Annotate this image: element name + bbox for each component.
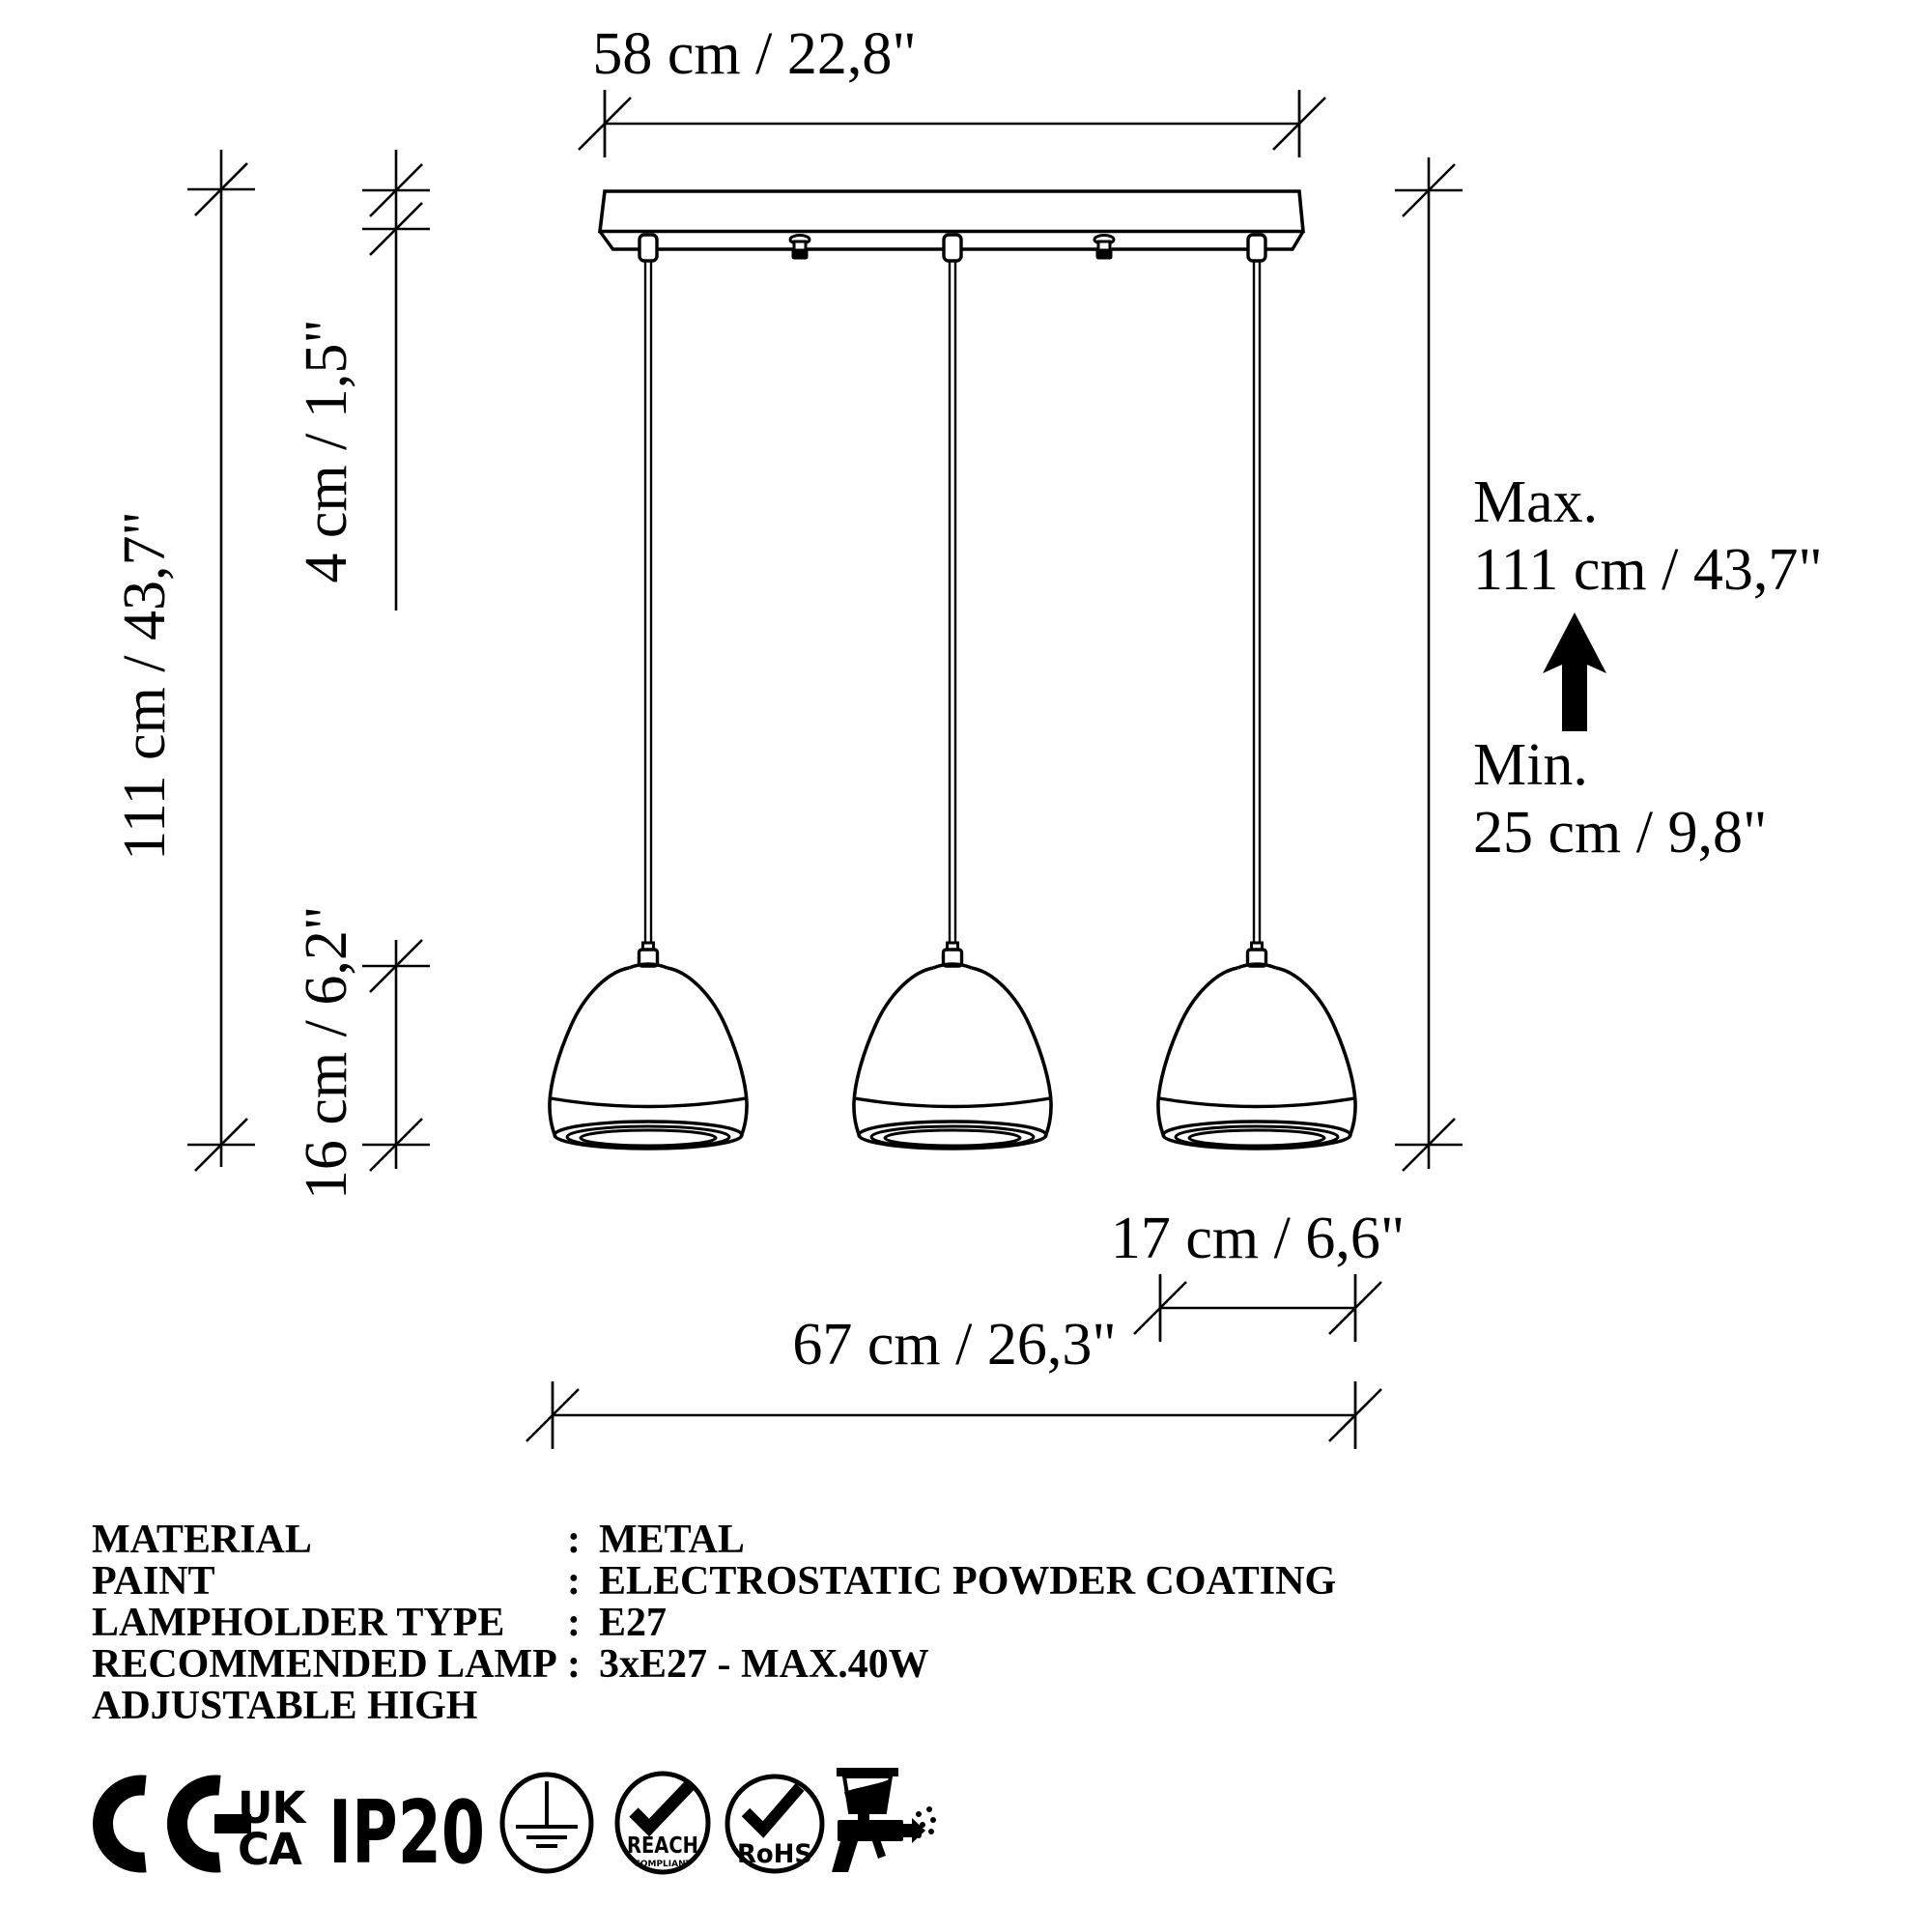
spec-table: MATERIAL : METAL PAINT : ELECTROSTATIC P… [92,1518,1336,1728]
spec-row-material: MATERIAL : METAL [92,1518,745,1562]
dim-canopy-height-label: 4 cm / 1,5" [294,319,359,582]
spec-row-lampholder: LAMPHOLDER TYPE : E27 [92,1601,667,1645]
ip20-rating-label: IP20 [328,1782,485,1884]
svg-text:CA: CA [238,1824,302,1875]
spec-row-recommended-lamp: RECOMMENDED LAMP : 3xE27 - MAX.40W [92,1642,929,1687]
svg-text:MATERIAL: MATERIAL [92,1518,312,1562]
protective-earth-icon [502,1775,591,1871]
dim-adjustable-height-line [1395,157,1463,1171]
spec-row-paint: PAINT : ELECTROSTATIC POWDER COATING [92,1559,1336,1604]
spray-gun-icon [832,1768,936,1872]
rohs-badge-icon: RoHS [727,1776,822,1871]
svg-text:REACH: REACH [627,1833,698,1859]
svg-text:LAMPHOLDER TYPE: LAMPHOLDER TYPE [92,1601,504,1645]
canopy-screw-right [1094,236,1114,260]
dim-canopy-width-label: 58 cm / 22,8" [592,21,916,87]
max-value: 111 cm / 43,7" [1473,537,1823,603]
spec-row-adjustable: ADJUSTABLE HIGH [92,1684,477,1728]
dim-canopy-width: 58 cm / 22,8" [579,21,1325,157]
svg-text::: : [567,1559,581,1604]
pendant-shade-left [550,235,747,1149]
ce-mark-icon [103,1785,251,1862]
svg-text:COMPLIANT: COMPLIANT [634,1860,692,1869]
dim-overall-height-label: 111 cm / 43,7" [112,511,178,861]
dim-overall-height: 111 cm / 43,7" [112,150,255,1171]
up-arrow-icon [1543,612,1606,731]
dim-canopy-height: 4 cm / 1,5" [294,150,430,611]
canopy-screw-left [790,236,810,260]
svg-text:METAL: METAL [599,1518,745,1562]
dim-shade-width: 17 cm / 6,6" [1111,1206,1405,1342]
pendant-lamp-drawing [550,191,1355,1149]
svg-text:ELECTROSTATIC POWDER COATING: ELECTROSTATIC POWDER COATING [599,1559,1336,1604]
min-label: Min. [1473,732,1588,798]
svg-text:RoHS: RoHS [737,1839,812,1869]
certification-row: UK CA IP20 REACH COMPLIANT RoHS [103,1768,936,1884]
ukca-mark-icon: UK CA [238,1782,308,1875]
reach-badge-icon: REACH COMPLIANT [617,1774,708,1872]
svg-text:PAINT: PAINT [92,1559,215,1604]
dim-shade-height-label: 16 cm / 6,2" [294,906,359,1200]
max-label: Max. [1473,469,1598,535]
svg-text::: : [567,1642,581,1687]
product-dimension-sheet: 58 cm / 22,8" 4 cm / 1,5" 111 cm / 43,7"… [0,0,1932,1932]
adjustable-height-annotation: Max. 111 cm / 43,7" Min. 25 cm / 9,8" [1473,469,1823,866]
svg-text:RECOMMENDED LAMP: RECOMMENDED LAMP [92,1642,557,1687]
svg-text:ADJUSTABLE HIGH: ADJUSTABLE HIGH [92,1684,477,1728]
svg-text::: : [567,1601,581,1645]
dim-shade-height: 16 cm / 6,2" [294,906,430,1200]
spray-dots [916,1806,936,1838]
dim-total-width: 67 cm / 26,3" [526,1312,1381,1449]
pendant-shade-middle [854,235,1051,1149]
pendant-shade-right [1158,235,1355,1149]
min-value: 25 cm / 9,8" [1473,800,1767,866]
svg-text::: : [567,1518,581,1562]
svg-text:E27: E27 [599,1601,667,1645]
svg-text:3xE27 - MAX.40W: 3xE27 - MAX.40W [599,1642,929,1687]
dim-shade-width-label: 17 cm / 6,6" [1111,1206,1405,1271]
dim-total-width-label: 67 cm / 26,3" [792,1312,1116,1378]
